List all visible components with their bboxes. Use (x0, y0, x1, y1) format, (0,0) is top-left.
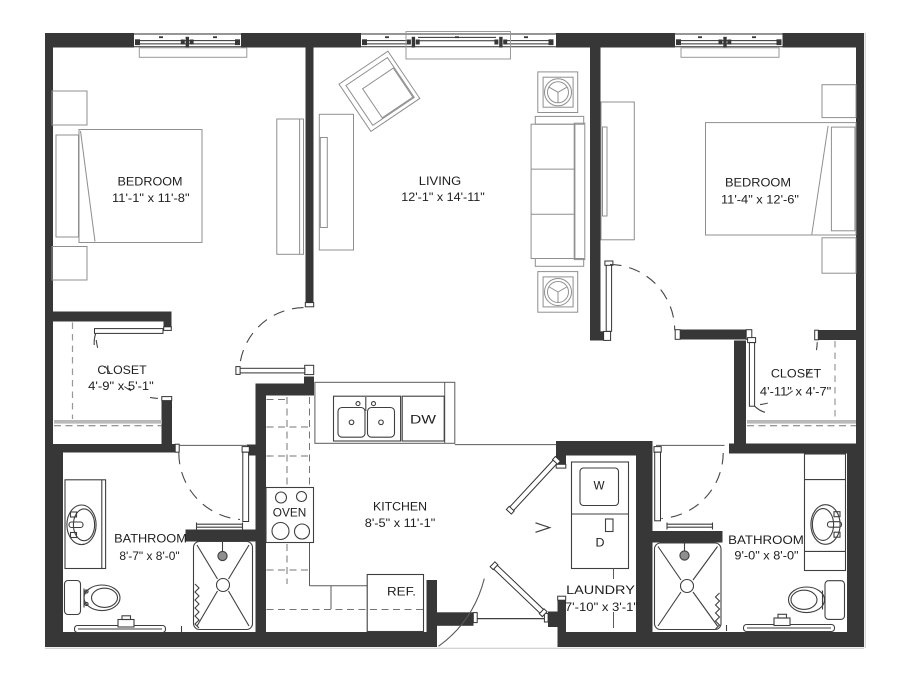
svg-text:BEDROOM: BEDROOM (725, 176, 791, 190)
svg-text:4'-9" x 5'-1": 4'-9" x 5'-1" (88, 379, 154, 393)
svg-text:W: W (594, 479, 606, 493)
svg-text:8'-5" x 11'-1": 8'-5" x 11'-1" (365, 516, 436, 530)
svg-text:LAUNDRY: LAUNDRY (566, 583, 635, 597)
svg-text:BEDROOM: BEDROOM (118, 174, 183, 188)
svg-text:7'-10" x 3'-1": 7'-10" x 3'-1" (565, 600, 638, 614)
svg-text:LIVING: LIVING (419, 174, 462, 188)
svg-text:4'-11" x 4'-7": 4'-11" x 4'-7" (760, 384, 831, 398)
svg-text:BATHROOM: BATHROOM (114, 531, 187, 545)
svg-text:BATHROOM: BATHROOM (728, 533, 804, 547)
svg-text:KITCHEN: KITCHEN (373, 499, 427, 513)
svg-text:12'-1" x 14'-11": 12'-1" x 14'-11" (401, 190, 485, 204)
svg-text:REF.: REF. (387, 584, 416, 598)
svg-text:OVEN: OVEN (273, 505, 307, 519)
svg-text:11'-1" x 11'-8": 11'-1" x 11'-8" (112, 191, 190, 205)
svg-text:11'-4" x 12'-6": 11'-4" x 12'-6" (721, 193, 799, 207)
svg-text:CLOSET: CLOSET (97, 363, 147, 377)
svg-text:8'-7" x 8'-0": 8'-7" x 8'-0" (119, 549, 179, 563)
svg-text:D: D (596, 536, 605, 550)
svg-text:9'-0" x 8'-0": 9'-0" x 8'-0" (734, 548, 798, 562)
svg-text:CLOSET: CLOSET (771, 367, 822, 381)
svg-text:DW: DW (410, 412, 437, 426)
